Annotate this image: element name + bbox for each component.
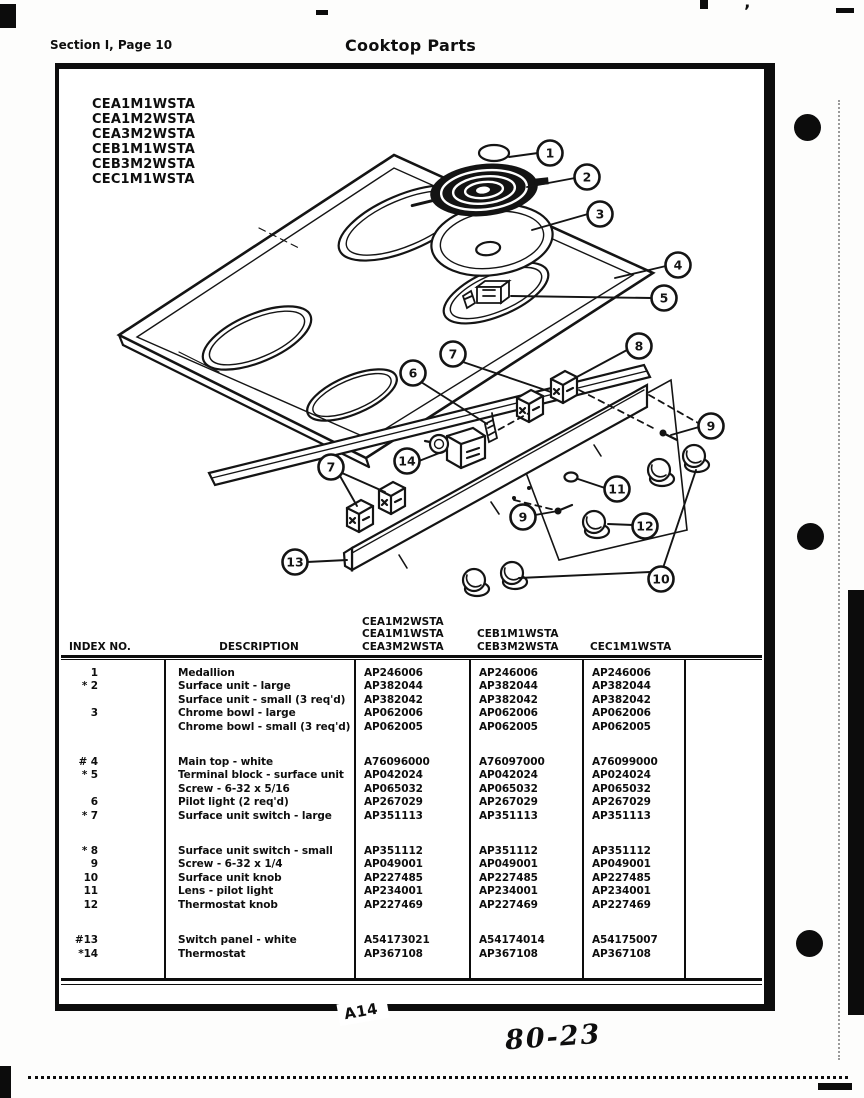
svg-text:11: 11	[608, 482, 625, 497]
scan-artifact	[848, 590, 864, 1015]
binder-dot	[794, 114, 821, 141]
table-body: 1MedallionAP246006AP246006AP246006* 2Sur…	[61, 660, 762, 978]
surface-switch-4	[379, 482, 405, 514]
callout-4: 4	[666, 253, 691, 278]
callout-6: 6	[401, 361, 426, 386]
page-edge-dots	[838, 100, 840, 1060]
screw-middle	[555, 505, 573, 515]
scan-artifact	[818, 1083, 852, 1090]
table-row: *14ThermostatAP367108AP367108AP367108	[61, 948, 762, 961]
svg-text:10: 10	[652, 572, 670, 587]
table-row: # 4Main top - whiteA76096000A76097000A76…	[61, 756, 762, 769]
table-row: 9Screw - 6-32 x 1/4AP049001AP049001AP049…	[61, 858, 762, 871]
scan-artifact: ’	[744, 2, 750, 22]
surface-switch-2	[551, 371, 577, 403]
callout-8: 8	[627, 334, 652, 359]
table-row: * 5Terminal block - surface unitAP042024…	[61, 769, 762, 782]
parts-table: INDEX NO. DESCRIPTION CEA1M2WSTA CEA1M1W…	[61, 603, 762, 985]
scan-artifact	[316, 10, 328, 15]
table-row: 6Pilot light (2 req'd)AP267029AP267029AP…	[61, 796, 762, 809]
svg-text:7: 7	[327, 460, 336, 475]
callout-2: 2	[575, 165, 600, 190]
svg-text:9: 9	[707, 419, 716, 434]
callout-5: 5	[652, 286, 677, 311]
surface-switch-3	[347, 500, 373, 532]
knob-4	[463, 569, 489, 596]
callout-9: 9	[511, 505, 536, 530]
callout-3: 3	[588, 202, 613, 227]
lens	[565, 473, 578, 482]
binder-dot	[796, 930, 823, 957]
svg-text:6: 6	[409, 366, 418, 381]
scan-artifact	[700, 0, 708, 9]
page-frame: CEA1M1WSTACEA1M2WSTACEA3M2WSTACEB1M1WSTA…	[55, 63, 775, 1011]
scanned-page: Section I, Page 10 Cooktop Parts CEA1M1W…	[0, 0, 864, 1098]
medallion	[479, 145, 509, 161]
svg-text:13: 13	[286, 555, 303, 570]
callout-10: 10	[649, 567, 674, 592]
page-edge-dots	[28, 1076, 848, 1079]
table-row: 3Chrome bowl - largeAP062006AP062006AP06…	[61, 707, 762, 720]
svg-text:8: 8	[635, 339, 644, 354]
table-row: 12Thermostat knobAP227469AP227469AP22746…	[61, 899, 762, 912]
svg-text:9: 9	[519, 510, 528, 525]
header-col1-models: CEA1M2WSTA CEA1M1WSTA CEA3M2WSTA	[354, 616, 469, 654]
table-row: * 2Surface unit - largeAP382044AP382044A…	[61, 680, 762, 693]
callout-11: 11	[605, 477, 630, 502]
svg-text:2: 2	[583, 170, 592, 185]
exploded-diagram: 123457861479119121310	[59, 89, 769, 608]
callout-12: 12	[633, 514, 658, 539]
table-row: Screw - 6-32 x 5/16AP065032AP065032AP065…	[61, 783, 762, 796]
knob-1	[648, 459, 674, 486]
table-row: * 8Surface unit switch - smallAP351112AP…	[61, 845, 762, 858]
table-row: Chrome bowl - small (3 req'd)AP062005AP0…	[61, 721, 762, 734]
scan-artifact	[0, 1066, 11, 1098]
header-description: DESCRIPTION	[164, 641, 354, 653]
header-index: INDEX NO.	[61, 641, 164, 653]
table-row: #13Switch panel - whiteA54173021A5417401…	[61, 934, 762, 947]
binder-dot	[797, 523, 824, 550]
svg-text:3: 3	[596, 207, 605, 222]
page-title: Cooktop Parts	[345, 36, 476, 55]
callout-14: 14	[395, 449, 420, 474]
table-row: 11Lens - pilot lightAP234001AP234001AP23…	[61, 885, 762, 898]
svg-text:14: 14	[398, 454, 416, 469]
terminal-block	[463, 281, 509, 308]
callout-7: 7	[319, 455, 344, 480]
svg-text:5: 5	[660, 291, 669, 306]
handwritten-note: 80-23	[504, 1019, 602, 1057]
table-header: INDEX NO. DESCRIPTION CEA1M2WSTA CEA1M1W…	[61, 603, 762, 655]
knob-5	[501, 562, 527, 589]
knob-2	[683, 445, 709, 472]
knob-3	[583, 511, 609, 538]
main-top-outline	[119, 155, 653, 467]
header-col3-models: CEC1M1WSTA	[582, 641, 684, 654]
callout-1: 1	[538, 141, 563, 166]
table-row: 10Surface unit knobAP227485AP227485AP227…	[61, 872, 762, 885]
callout-9: 9	[699, 414, 724, 439]
table-row: Surface unit - small (3 req'd)AP382042AP…	[61, 694, 762, 707]
table-bottom-rule	[61, 978, 762, 985]
svg-text:7: 7	[449, 347, 458, 362]
burner-opening-bottom	[300, 359, 403, 431]
section-label: Section I, Page 10	[50, 38, 172, 52]
header-col2-models: CEB1M1WSTA CEB3M2WSTA	[469, 628, 582, 653]
thermostat	[425, 428, 485, 468]
svg-text:12: 12	[636, 519, 653, 534]
table-row: * 7Surface unit switch - largeAP351113AP…	[61, 810, 762, 823]
scan-artifact	[0, 4, 16, 28]
svg-text:1: 1	[546, 146, 555, 161]
svg-text:4: 4	[674, 258, 683, 273]
callout-7: 7	[441, 342, 466, 367]
callout-13: 13	[283, 550, 308, 575]
scan-artifact	[836, 8, 854, 13]
table-row: 1MedallionAP246006AP246006AP246006	[61, 667, 762, 680]
